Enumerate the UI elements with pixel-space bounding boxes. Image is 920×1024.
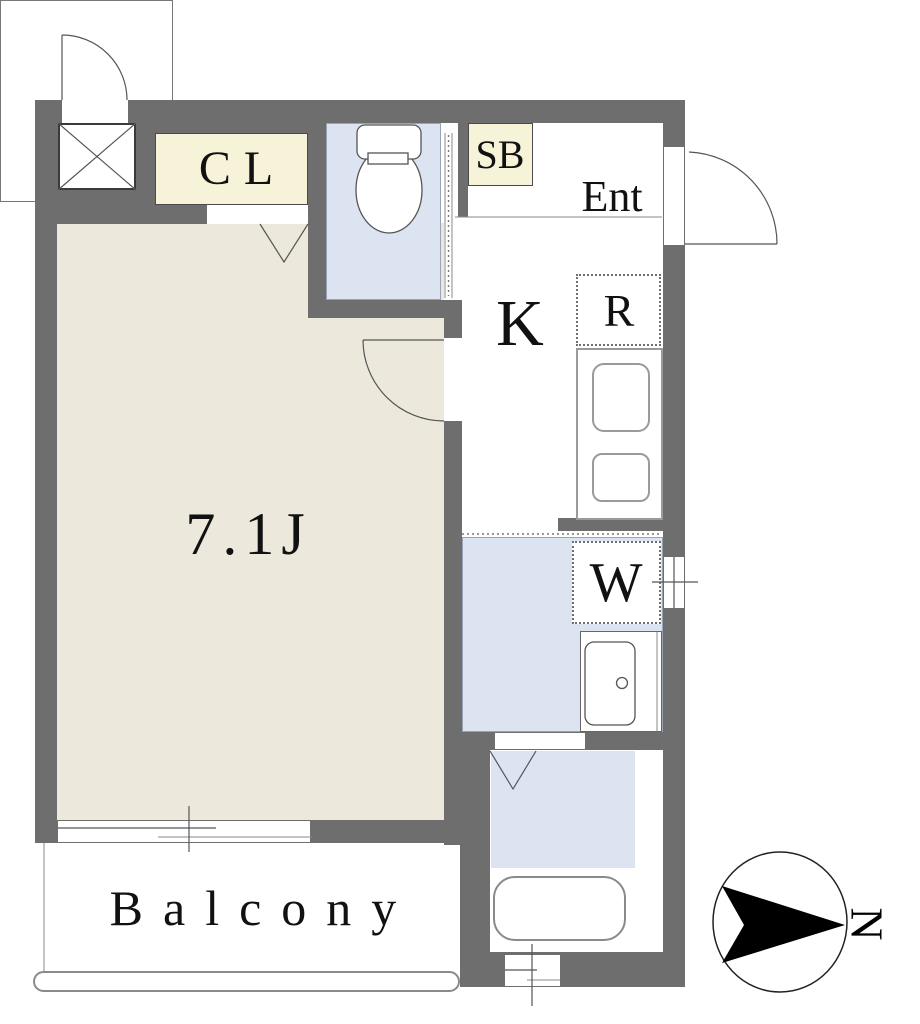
compass-north-label: N xyxy=(842,907,893,940)
label-balcony: Balcony xyxy=(90,883,417,933)
wall-sb-stub xyxy=(458,123,468,217)
bathroom-wet-floor xyxy=(491,751,635,868)
balcony-window-opening xyxy=(58,821,310,842)
wall-toilet-left xyxy=(308,100,326,318)
main-door-opening xyxy=(444,338,462,421)
bathtub-icon xyxy=(493,876,626,941)
balcony-railing xyxy=(33,971,460,992)
label-entrance: Ent xyxy=(581,175,642,219)
floor-plan: N CL SB Ent K R 7.1J W Balcony xyxy=(0,0,920,1024)
label-kitchen: K xyxy=(496,291,544,357)
wall-bath-south xyxy=(462,952,685,987)
toilet-door-icon xyxy=(445,133,452,298)
toilet-room-floor xyxy=(326,123,441,300)
kitchen-sink-icon xyxy=(592,363,650,432)
north-arrow-icon xyxy=(722,886,845,963)
stove-icon xyxy=(592,453,650,502)
wall-bath-left xyxy=(460,732,490,987)
washbasin-counter xyxy=(580,631,662,732)
entrance-door-opening xyxy=(664,147,684,245)
bathroom-window-opening xyxy=(505,955,560,986)
outside-door-opening xyxy=(62,99,128,124)
shaft-x-icon xyxy=(58,123,136,190)
entrance-door-swing-icon xyxy=(685,152,777,244)
label-main-room: 7.1J xyxy=(178,504,311,564)
label-closet: CL xyxy=(186,145,286,193)
label-refrigerator: R xyxy=(604,288,635,334)
closet-opening xyxy=(207,205,308,224)
compass-icon: N xyxy=(713,852,893,992)
washroom-window-opening xyxy=(664,557,684,608)
bathroom-door-opening xyxy=(495,733,585,749)
wall-toilet-bottom xyxy=(308,300,462,318)
label-shoe-box: SB xyxy=(476,135,525,175)
label-washer: W xyxy=(590,555,643,611)
